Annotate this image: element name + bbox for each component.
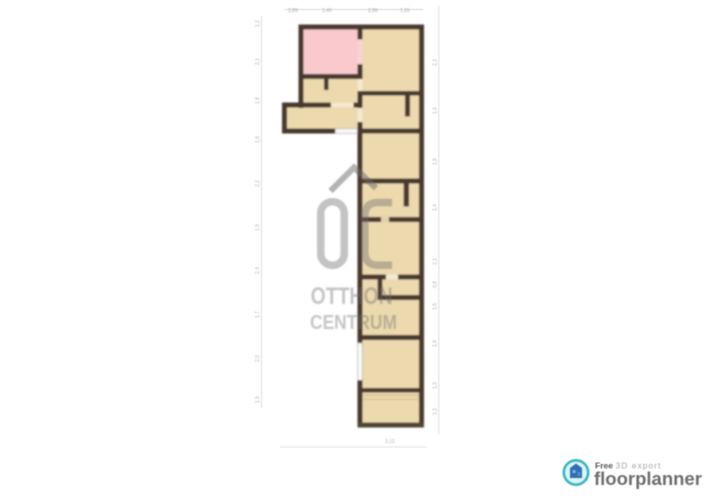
- svg-text:1,40: 1,40: [322, 8, 332, 14]
- svg-text:2,1: 2,1: [433, 258, 439, 265]
- svg-text:1,55: 1,55: [400, 8, 410, 14]
- svg-text:1,8: 1,8: [255, 97, 261, 104]
- svg-text:1,1: 1,1: [433, 408, 439, 415]
- svg-text:3,10: 3,10: [385, 439, 395, 445]
- svg-text:1,5: 1,5: [255, 396, 261, 403]
- svg-text:0,8: 0,8: [433, 281, 439, 288]
- svg-text:1,2: 1,2: [255, 20, 261, 27]
- svg-text:1,6: 1,6: [255, 136, 261, 143]
- svg-text:2,4: 2,4: [255, 267, 261, 274]
- svg-text:2,0: 2,0: [255, 355, 261, 362]
- svg-text:1,4: 1,4: [433, 204, 439, 211]
- svg-text:OTTHON: OTTHON: [311, 283, 393, 310]
- svg-text:2,1: 2,1: [255, 58, 261, 65]
- svg-text:1,5: 1,5: [433, 303, 439, 310]
- svg-text:1,8: 1,8: [433, 158, 439, 165]
- svg-text:1,3: 1,3: [433, 382, 439, 389]
- svg-text:1,9: 1,9: [255, 224, 261, 231]
- svg-text:1,7: 1,7: [255, 311, 261, 318]
- svg-text:CENTRUM: CENTRUM: [310, 311, 397, 334]
- svg-text:1,9: 1,9: [433, 340, 439, 347]
- svg-text:2,89: 2,89: [288, 8, 298, 14]
- svg-text:1,6: 1,6: [433, 107, 439, 114]
- svg-text:2,3: 2,3: [433, 59, 439, 66]
- svg-text:floorplanner: floorplanner: [594, 468, 702, 489]
- svg-text:2,96: 2,96: [368, 8, 378, 14]
- svg-text:2,2: 2,2: [255, 180, 261, 187]
